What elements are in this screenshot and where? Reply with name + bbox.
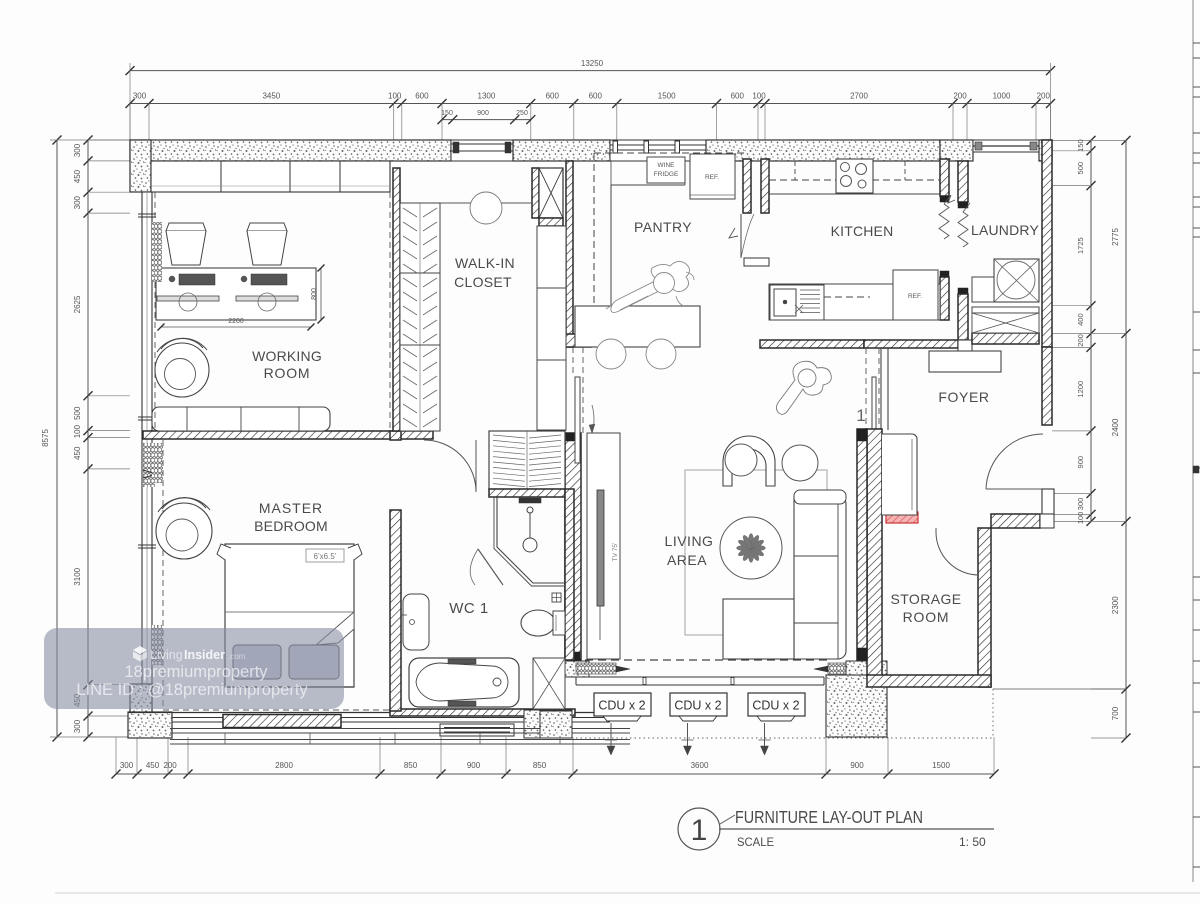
svg-text:STORAGE: STORAGE	[890, 591, 961, 607]
svg-text:2300: 2300	[1111, 596, 1120, 614]
svg-text:CDU x 2: CDU x 2	[674, 699, 721, 713]
svg-text:200: 200	[953, 92, 967, 101]
svg-text:KITCHEN: KITCHEN	[831, 223, 894, 239]
svg-text:900: 900	[477, 110, 489, 117]
svg-text:WC 1: WC 1	[449, 600, 489, 617]
svg-text:CDU x 2: CDU x 2	[598, 699, 645, 713]
svg-text:WALK-IN: WALK-IN	[455, 255, 515, 271]
svg-text:500: 500	[1076, 162, 1085, 175]
svg-text:1: 1	[691, 814, 708, 847]
svg-text:400: 400	[1076, 313, 1085, 326]
svg-text:900: 900	[1076, 456, 1085, 469]
svg-text:1: 50: 1: 50	[959, 835, 986, 849]
svg-text:SCALE: SCALE	[737, 835, 774, 849]
svg-text:WINE: WINE	[658, 162, 676, 169]
svg-text:2200: 2200	[228, 318, 244, 325]
svg-text:CDU x 2: CDU x 2	[752, 699, 799, 713]
svg-text:PANTRY: PANTRY	[634, 219, 692, 235]
svg-text:250: 250	[516, 110, 528, 117]
svg-text:REF.: REF.	[908, 293, 922, 300]
svg-text:6’x6.5’: 6’x6.5’	[313, 552, 336, 561]
svg-text:3600: 3600	[691, 761, 709, 770]
svg-text:700: 700	[1111, 706, 1120, 720]
svg-text:LINE ID : @18premiumproperty: LINE ID : @18premiumproperty	[76, 681, 308, 699]
svg-text:ROOM: ROOM	[264, 365, 311, 381]
svg-text:600: 600	[589, 92, 603, 101]
svg-text:300: 300	[73, 195, 82, 209]
svg-text:FURNITURE LAY-OUT PLAN: FURNITURE LAY-OUT PLAN	[735, 807, 923, 827]
svg-text:450: 450	[146, 761, 160, 770]
svg-text:150: 150	[1076, 139, 1085, 152]
svg-text:300: 300	[73, 143, 82, 157]
svg-text:1500: 1500	[658, 92, 676, 101]
svg-text:850: 850	[404, 761, 418, 770]
svg-text:8575: 8575	[41, 429, 50, 447]
svg-text:.com: .com	[228, 652, 246, 661]
svg-text:200: 200	[1076, 334, 1085, 347]
svg-text:AREA: AREA	[667, 552, 707, 568]
svg-text:900: 900	[850, 761, 864, 770]
svg-text:100: 100	[388, 92, 402, 101]
svg-text:2625: 2625	[73, 295, 82, 313]
svg-text:200: 200	[163, 761, 177, 770]
svg-text:CLOSET: CLOSET	[454, 274, 512, 290]
svg-text:300: 300	[1076, 498, 1085, 511]
svg-text:150: 150	[441, 110, 453, 117]
svg-text:300: 300	[133, 92, 147, 101]
svg-text:REF.: REF.	[705, 174, 719, 181]
svg-text:BEDROOM: BEDROOM	[254, 518, 328, 534]
svg-text:ROOM: ROOM	[903, 609, 950, 625]
svg-text:1: 1	[856, 406, 865, 425]
svg-text:1000: 1000	[993, 92, 1011, 101]
svg-text:FOYER: FOYER	[938, 389, 989, 405]
svg-text:450: 450	[73, 446, 82, 460]
svg-text:3100: 3100	[73, 567, 82, 585]
svg-text:2800: 2800	[275, 761, 293, 770]
svg-text:2400: 2400	[1111, 418, 1120, 436]
svg-text:200: 200	[1037, 92, 1051, 101]
svg-text:13250: 13250	[581, 59, 604, 68]
svg-text:1300: 1300	[478, 92, 496, 101]
svg-text:900: 900	[467, 761, 481, 770]
svg-text:1200: 1200	[1076, 381, 1085, 398]
svg-text:600: 600	[731, 92, 745, 101]
svg-text:850: 850	[533, 761, 547, 770]
svg-text:450: 450	[73, 169, 82, 183]
svg-text:LIVING: LIVING	[665, 533, 714, 549]
svg-text:1725: 1725	[1076, 237, 1085, 254]
svg-text:300: 300	[73, 719, 82, 733]
svg-text:100: 100	[752, 92, 766, 101]
svg-text:500: 500	[73, 406, 82, 420]
svg-text:Living: Living	[150, 648, 183, 662]
svg-text:800: 800	[311, 288, 318, 300]
svg-text:FRIDGE: FRIDGE	[654, 171, 679, 178]
svg-text:600: 600	[415, 92, 429, 101]
svg-text:2700: 2700	[850, 92, 868, 101]
svg-text:LAUNDRY: LAUNDRY	[971, 222, 1040, 238]
svg-text:Insider: Insider	[184, 648, 225, 662]
svg-text:100: 100	[73, 424, 82, 438]
svg-text:WORKING: WORKING	[252, 348, 322, 364]
svg-text:300: 300	[120, 761, 134, 770]
svg-text:2775: 2775	[1111, 228, 1120, 246]
svg-text:600: 600	[546, 92, 560, 101]
svg-text:3450: 3450	[262, 92, 280, 101]
svg-text:1500: 1500	[932, 761, 950, 770]
svg-text:18premiumproperty: 18premiumproperty	[124, 663, 268, 681]
svg-text:TV 75’: TV 75’	[612, 542, 619, 561]
svg-text:MASTER: MASTER	[259, 500, 323, 516]
svg-text:100: 100	[1076, 512, 1085, 525]
